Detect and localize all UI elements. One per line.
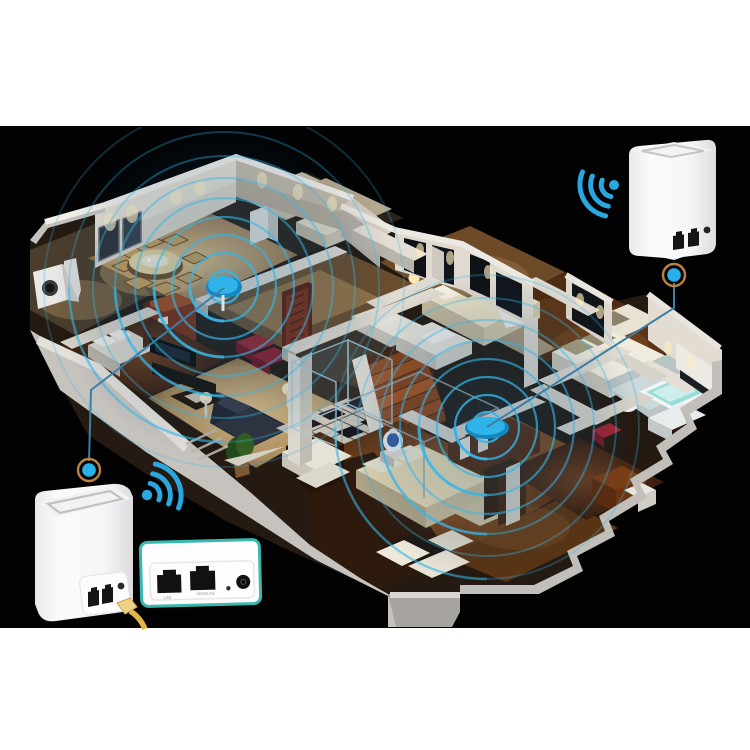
svg-text:LAN: LAN <box>164 595 172 600</box>
svg-text:WAN/LAN: WAN/LAN <box>196 591 214 596</box>
